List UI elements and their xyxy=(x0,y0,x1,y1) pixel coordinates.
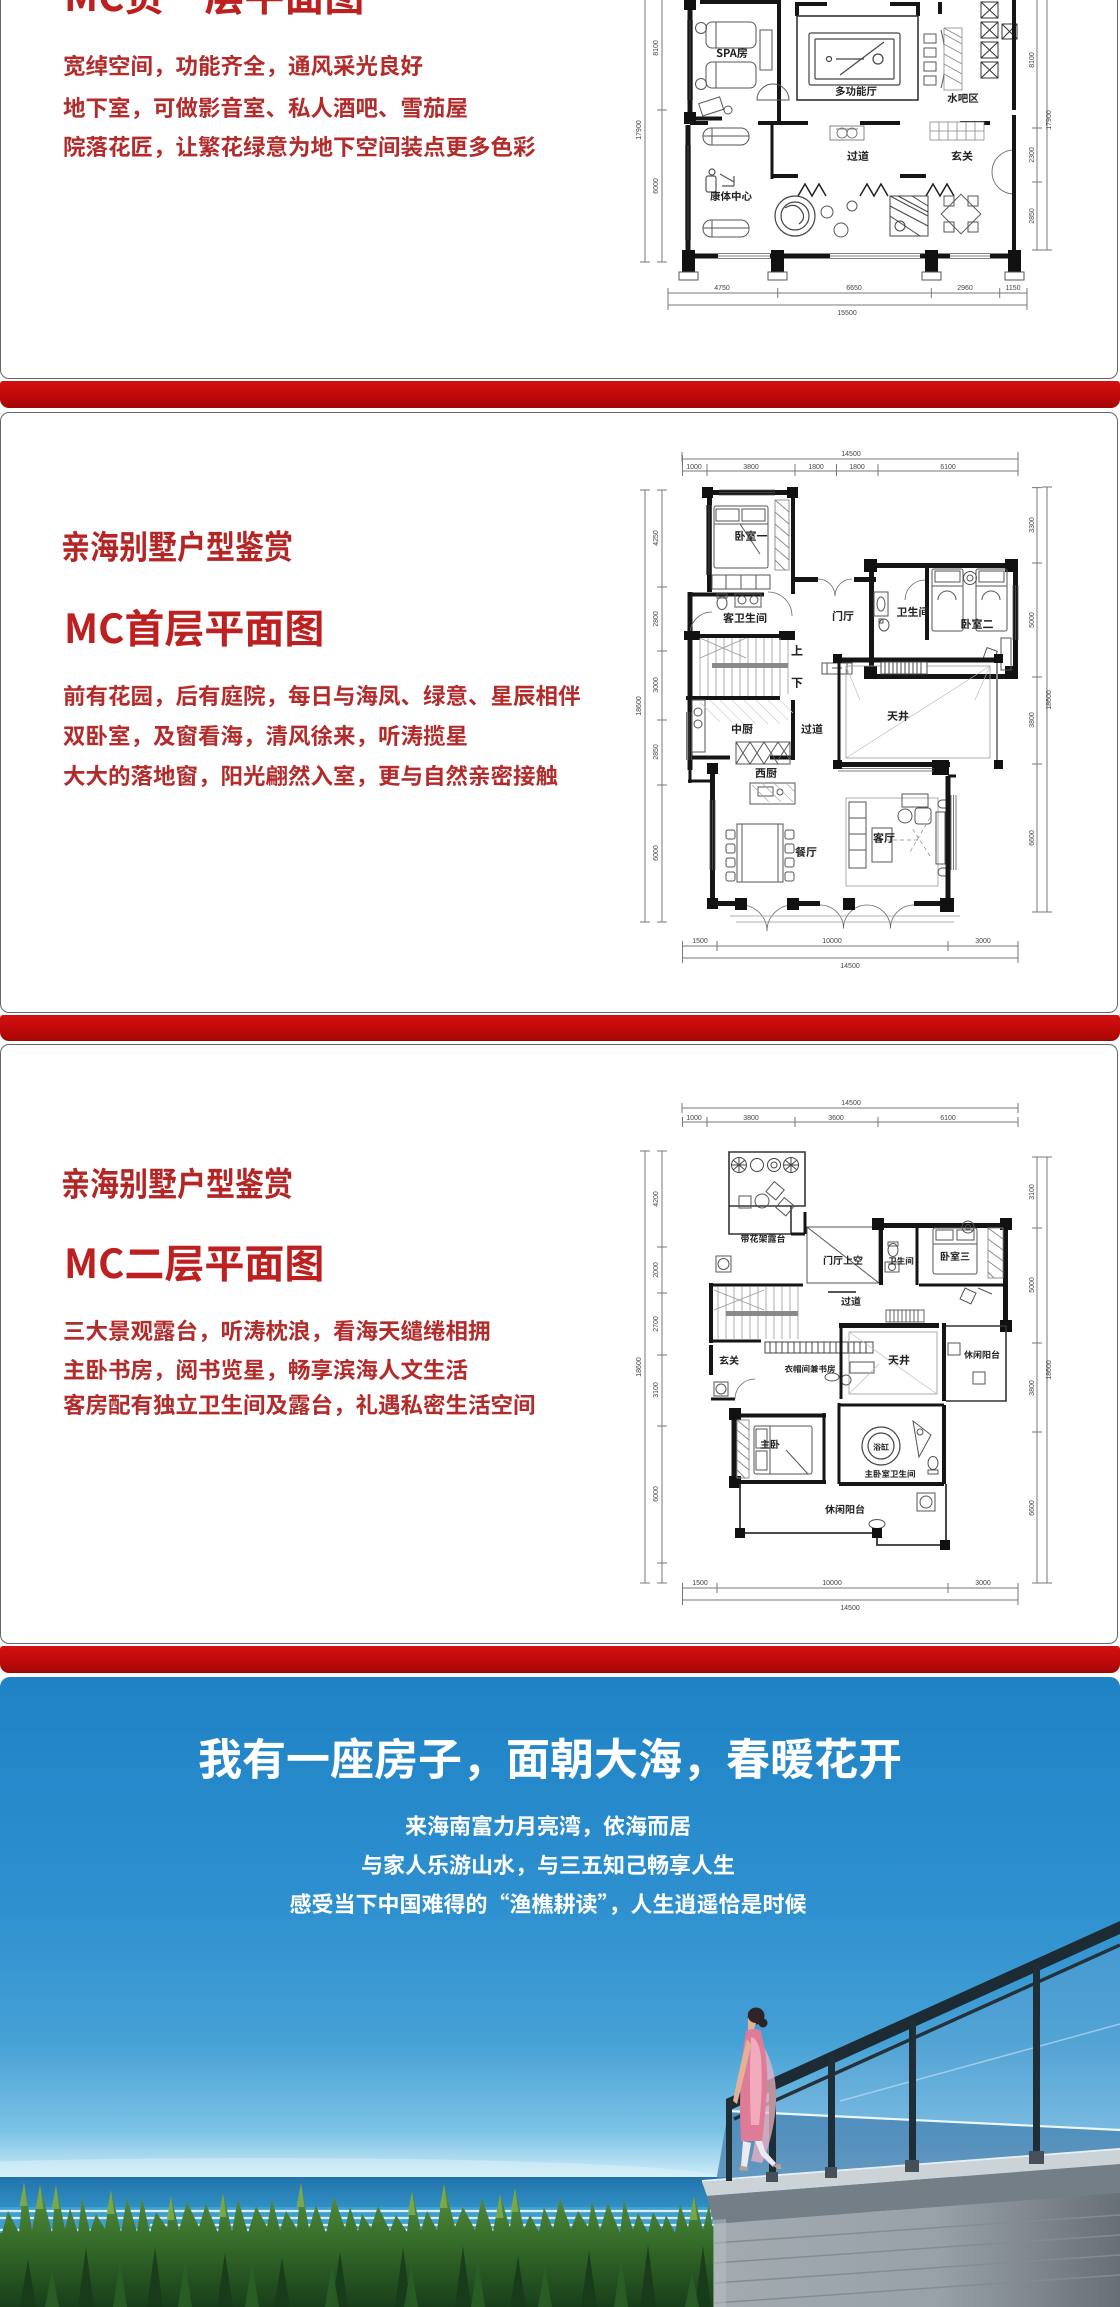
svg-text:18600: 18600 xyxy=(634,1357,644,1377)
svg-text:3300: 3300 xyxy=(1027,517,1037,533)
svg-text:1800: 1800 xyxy=(808,462,824,472)
svg-text:3800: 3800 xyxy=(743,1113,759,1123)
svg-text:3000: 3000 xyxy=(975,936,991,946)
svg-text:卧室一: 卧室一 xyxy=(735,528,768,544)
svg-text:3800: 3800 xyxy=(1027,712,1037,728)
svg-text:10000: 10000 xyxy=(822,936,842,946)
svg-text:2300: 2300 xyxy=(1027,147,1037,163)
svg-text:6600: 6600 xyxy=(1027,1500,1037,1516)
svg-text:14500: 14500 xyxy=(840,1603,860,1613)
svg-text:1500: 1500 xyxy=(692,936,708,946)
svg-text:3000: 3000 xyxy=(651,677,661,693)
svg-text:17900: 17900 xyxy=(1044,110,1054,130)
svg-text:2800: 2800 xyxy=(651,611,661,627)
svg-text:6100: 6100 xyxy=(940,1113,956,1123)
svg-text:衣帽间兼书房: 衣帽间兼书房 xyxy=(784,1363,835,1375)
svg-text:2850: 2850 xyxy=(651,744,661,760)
svg-text:1000: 1000 xyxy=(686,1113,702,1123)
svg-text:餐厅: 餐厅 xyxy=(795,844,817,860)
svg-text:14500: 14500 xyxy=(840,961,860,971)
svg-text:多功能厅: 多功能厅 xyxy=(835,84,877,99)
svg-text:3100: 3100 xyxy=(651,1382,661,1398)
svg-text:5000: 5000 xyxy=(1027,1277,1037,1293)
svg-text:SPA房: SPA房 xyxy=(716,45,748,61)
svg-text:18600: 18600 xyxy=(634,696,644,716)
svg-text:3600: 3600 xyxy=(828,1113,844,1123)
svg-text:1800: 1800 xyxy=(849,462,865,472)
svg-text:3100: 3100 xyxy=(1027,1184,1037,1200)
svg-text:6600: 6600 xyxy=(1027,830,1037,846)
svg-text:2960: 2960 xyxy=(957,283,973,293)
svg-text:过道: 过道 xyxy=(847,148,869,164)
svg-text:浴缸: 浴缸 xyxy=(873,1442,889,1453)
svg-text:4250: 4250 xyxy=(651,530,661,546)
svg-text:1500: 1500 xyxy=(692,1578,708,1588)
svg-text:休闲阳台: 休闲阳台 xyxy=(825,1501,865,1516)
svg-text:康体中心: 康体中心 xyxy=(710,189,752,204)
svg-text:门厅上空: 门厅上空 xyxy=(823,1252,863,1267)
svg-text:1150: 1150 xyxy=(1005,283,1020,293)
svg-text:卫生间: 卫生间 xyxy=(897,604,930,620)
svg-text:2700: 2700 xyxy=(651,1316,661,1332)
svg-text:卫生间: 卫生间 xyxy=(888,1255,914,1267)
svg-text:门厅: 门厅 xyxy=(832,608,854,624)
svg-text:客卫生间: 客卫生间 xyxy=(723,610,767,626)
svg-text:6000: 6000 xyxy=(651,178,661,194)
svg-text:带花架露台: 带花架露台 xyxy=(740,1232,785,1245)
svg-text:1000: 1000 xyxy=(686,462,702,472)
svg-text:中厨: 中厨 xyxy=(731,721,753,737)
svg-text:14500: 14500 xyxy=(841,449,861,459)
svg-text:17900: 17900 xyxy=(634,120,644,140)
svg-text:主卧: 主卧 xyxy=(760,1436,780,1451)
svg-text:18600: 18600 xyxy=(1044,1360,1054,1380)
svg-text:过道: 过道 xyxy=(841,1293,861,1308)
svg-text:10000: 10000 xyxy=(822,1578,842,1588)
svg-text:3000: 3000 xyxy=(975,1578,991,1588)
svg-text:西厨: 西厨 xyxy=(755,765,777,781)
svg-text:主卧室卫生间: 主卧室卫生间 xyxy=(864,1468,915,1480)
svg-text:水吧区: 水吧区 xyxy=(947,91,979,106)
svg-text:2850: 2850 xyxy=(1027,208,1037,224)
svg-text:6000: 6000 xyxy=(651,845,661,861)
svg-text:6000: 6000 xyxy=(651,1486,661,1502)
svg-text:4750: 4750 xyxy=(714,283,730,293)
svg-text:天井: 天井 xyxy=(888,1352,910,1368)
svg-text:客厅: 客厅 xyxy=(873,830,895,846)
svg-text:8100: 8100 xyxy=(651,40,661,56)
svg-text:6650: 6650 xyxy=(846,283,862,293)
svg-text:玄关: 玄关 xyxy=(719,1352,739,1367)
svg-text:2000: 2000 xyxy=(651,1262,661,1278)
svg-text:天井: 天井 xyxy=(887,708,909,724)
svg-text:6100: 6100 xyxy=(940,462,956,472)
svg-text:过道: 过道 xyxy=(801,721,823,737)
svg-text:玄关: 玄关 xyxy=(951,148,973,164)
svg-text:5000: 5000 xyxy=(1027,612,1037,628)
svg-text:下: 下 xyxy=(791,674,803,691)
svg-text:休闲阳台: 休闲阳台 xyxy=(964,1348,1000,1361)
svg-text:15500: 15500 xyxy=(837,308,857,318)
svg-text:3800: 3800 xyxy=(743,462,759,472)
svg-text:上: 上 xyxy=(791,642,803,659)
svg-text:4200: 4200 xyxy=(651,1191,661,1207)
svg-text:3800: 3800 xyxy=(1027,1380,1037,1396)
svg-text:18600: 18600 xyxy=(1044,690,1054,710)
svg-text:8100: 8100 xyxy=(1027,52,1037,68)
svg-text:14500: 14500 xyxy=(841,1098,861,1108)
svg-text:卧室三: 卧室三 xyxy=(940,1248,970,1263)
svg-text:卧室二: 卧室二 xyxy=(961,616,994,632)
